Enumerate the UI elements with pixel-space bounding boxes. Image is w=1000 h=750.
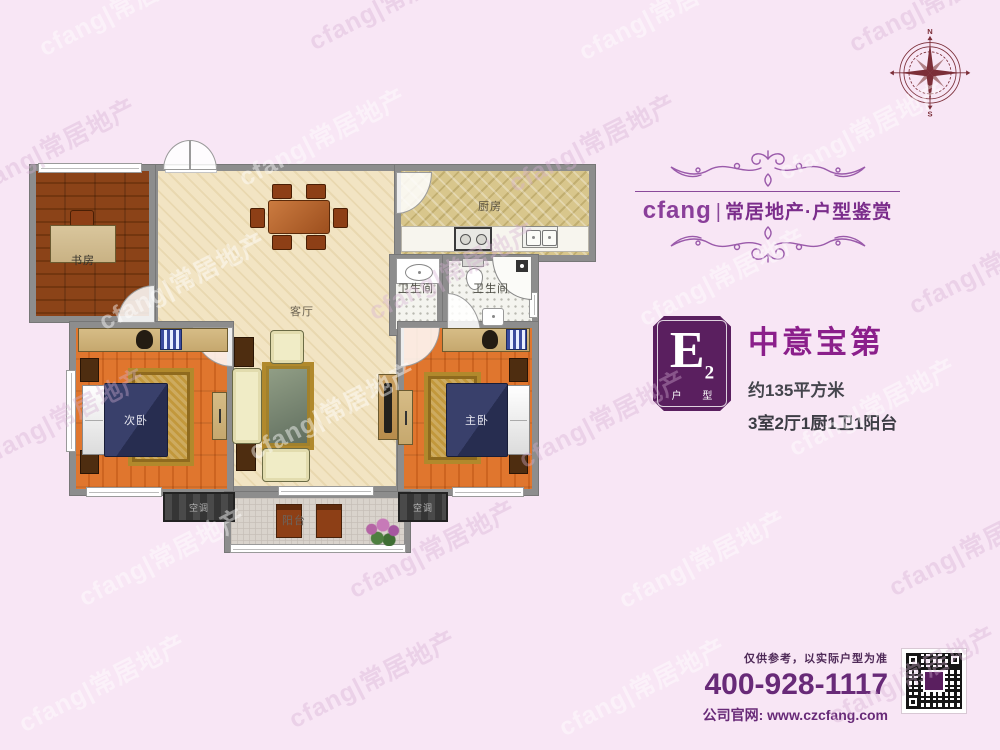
burner-icon xyxy=(476,234,487,245)
sofa xyxy=(232,368,262,444)
window-study-top xyxy=(38,163,142,173)
study-label: 书房 xyxy=(50,252,116,268)
bed-pillows-left xyxy=(82,385,106,455)
listing-info: 中意宝第 约135平方米 3室2厅1厨1卫1阳台 xyxy=(748,317,897,434)
ac-left-label: 空调 xyxy=(189,501,209,514)
tv-cabinet xyxy=(378,374,398,440)
burner-icon xyxy=(460,234,471,245)
qr-center-logo xyxy=(923,670,945,692)
dining-chair xyxy=(306,235,326,250)
qr-finder-icon xyxy=(948,653,962,667)
balcony-label: 阳台 xyxy=(264,512,324,528)
qr-finder-icon xyxy=(906,653,920,667)
phone-number: 400-928-1117 xyxy=(588,668,888,702)
qr-modules xyxy=(906,653,962,709)
bathroom-left-label: 卫生间 xyxy=(386,280,446,296)
window-bedroom-left-west xyxy=(66,370,76,452)
qr-code xyxy=(901,648,967,714)
bathroom-right-label: 卫生间 xyxy=(448,280,534,296)
loveseat xyxy=(262,448,310,482)
bedroom-right-label: 主卧 xyxy=(465,412,489,428)
ac-right-label: 空调 xyxy=(413,501,433,514)
flourish-bottom-icon xyxy=(643,225,893,263)
dining-chair xyxy=(250,208,265,228)
wardrobe-left xyxy=(78,328,228,352)
entry-door-left-leaf xyxy=(163,140,190,170)
living-rug xyxy=(262,362,314,450)
watermark-text: cfang|常居地产 xyxy=(572,0,752,68)
kitchen-label: 厨房 xyxy=(460,198,520,214)
stove xyxy=(454,227,492,251)
dresser-right xyxy=(398,390,413,445)
watermark-text: cfang|常居地产 xyxy=(882,488,1000,603)
tv xyxy=(384,383,392,433)
badge-inner-border xyxy=(657,320,727,407)
compass-rose-icon: N S xyxy=(888,26,972,118)
watermark-text: cfang|常居地产 xyxy=(12,624,192,739)
qr-finder-icon xyxy=(906,695,920,709)
brand-tagline: 常居地产·户型鉴赏 xyxy=(725,202,892,223)
window-living-balcony xyxy=(278,486,374,496)
dining-table xyxy=(268,200,330,234)
dresser-left xyxy=(212,392,227,440)
vanity-sink xyxy=(405,264,433,281)
plant xyxy=(364,518,402,546)
showerhead-icon xyxy=(516,260,528,272)
side-table xyxy=(234,337,254,367)
brand-logo: cfang xyxy=(643,197,712,224)
nightstand xyxy=(80,358,99,382)
compass-north-label: N xyxy=(927,27,932,36)
entry-door-right-leaf xyxy=(190,140,217,170)
watermark-text: cfang|常居地产 xyxy=(302,0,482,58)
window-bedroom-left-south xyxy=(86,487,162,497)
toilet-tank xyxy=(462,258,484,267)
listing-rooms-summary: 3室2厅1厨1卫1阳台 xyxy=(748,409,897,434)
listing-title: 中意宝第 xyxy=(748,317,897,362)
armchair xyxy=(270,330,304,364)
living-label: 客厅 xyxy=(252,303,352,319)
dining-chair xyxy=(272,235,292,250)
clothes-on-wardrobe xyxy=(160,329,182,350)
unit-type-badge: E2 户 型 xyxy=(653,316,731,411)
bed-right: 主卧 xyxy=(446,383,508,457)
dining-chair xyxy=(272,184,292,199)
side-table xyxy=(236,443,256,471)
bedroom-left-label: 次卧 xyxy=(124,412,148,428)
bag-on-wardrobe xyxy=(136,330,153,349)
kitchen-counter xyxy=(401,226,589,252)
dining-chair xyxy=(333,208,348,228)
kitchen-sink xyxy=(522,226,558,248)
sink-basin xyxy=(526,230,541,246)
ac-platform-right: 空调 xyxy=(398,492,448,522)
logo-row: cfang|常居地产·户型鉴赏 xyxy=(635,191,900,225)
small-sink xyxy=(482,308,504,326)
dining-chair xyxy=(306,184,326,199)
watermark-text: cfang|常居地产 xyxy=(902,206,1000,321)
nightstand xyxy=(509,358,528,382)
footer-contact: 仅供参考，以实际户型为准 400-928-1117 公司官网: www.czcf… xyxy=(588,650,888,725)
flourish-top-icon xyxy=(643,150,893,188)
bed-left: 次卧 xyxy=(104,383,168,457)
listing-area: 约135平方米 xyxy=(748,376,897,401)
ac-platform-left: 空调 xyxy=(163,492,235,522)
floor-plan: 空调 空调 次卧 主卧 xyxy=(20,140,600,570)
clothes-on-wardrobe xyxy=(506,329,527,350)
bag-on-wardrobe xyxy=(482,330,498,349)
brand-header: cfang|常居地产·户型鉴赏 xyxy=(635,150,900,268)
watermark-text: cfang|常居地产 xyxy=(32,0,212,64)
watermark-text: cfang|常居地产 xyxy=(612,500,792,615)
bed-pillows-right xyxy=(507,385,530,455)
compass-south-label: S xyxy=(927,110,932,118)
disclaimer-text: 仅供参考，以实际户型为准 xyxy=(588,650,888,666)
window-bedroom-right-south xyxy=(452,487,524,497)
watermark-text: cfang|常居地产 xyxy=(282,620,462,735)
sink-basin xyxy=(542,230,557,246)
logo-divider: | xyxy=(716,201,721,223)
website-url: 公司官网: www.czcfang.com xyxy=(588,705,888,725)
